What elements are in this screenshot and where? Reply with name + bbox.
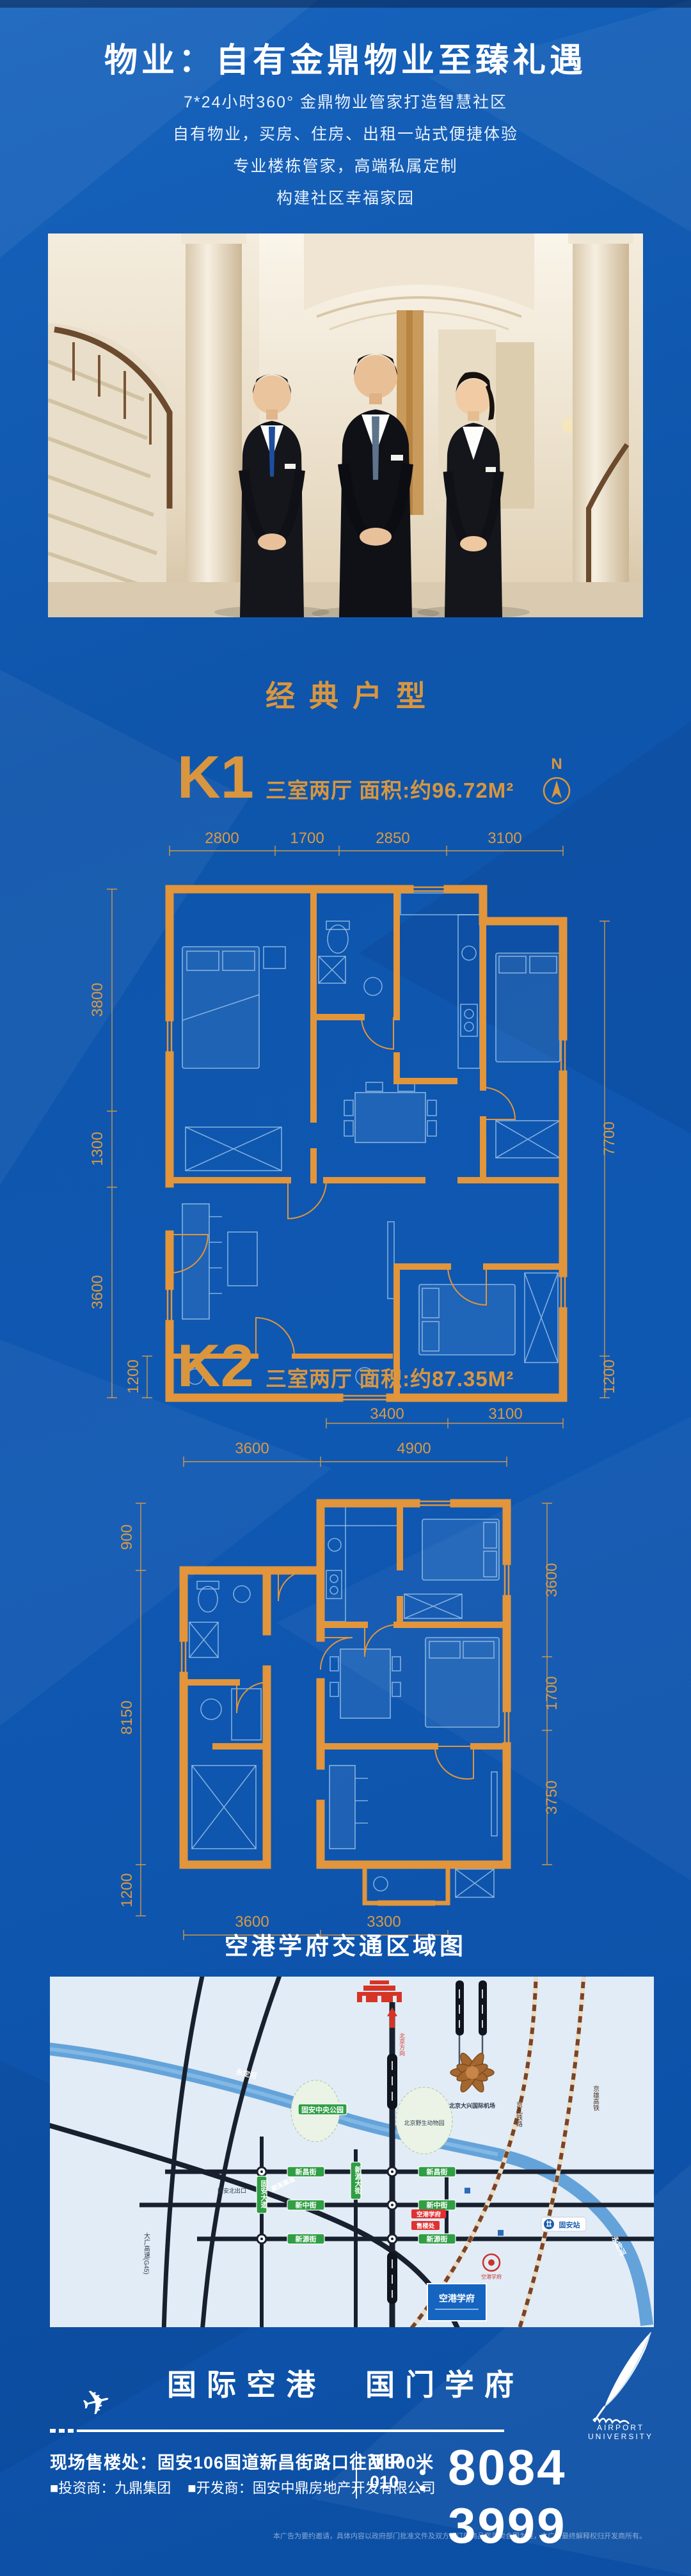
sign-guan-ave: 固安大道 bbox=[260, 2180, 268, 2209]
section-title-classic: 经典户型 bbox=[0, 673, 691, 715]
metro-icon bbox=[465, 2188, 470, 2193]
metro-icon bbox=[498, 2230, 504, 2236]
sign-xinchang: 新昌街 bbox=[296, 2167, 317, 2176]
k2-dim: 3750 bbox=[543, 1780, 560, 1814]
wildlife-park-label: 北京野生动物园 bbox=[404, 2119, 444, 2126]
to-beijing-label: 北京方向 bbox=[399, 2033, 405, 2056]
k1-dim: 1700 bbox=[290, 830, 324, 847]
disclaimer: 本广告为要约邀请，具体内容以政府部门批准文件及双方签订的商品房买卖合同为准，本广… bbox=[0, 2531, 646, 2541]
vip-block: VIP 010 bbox=[370, 2450, 404, 2492]
k1-title: K1 三室两厅 面积:约96.72M² bbox=[0, 747, 691, 807]
k2-dim: 1700 bbox=[543, 1676, 560, 1710]
project-billboard: 空港学府 bbox=[427, 2284, 486, 2321]
k1-dim: 1300 bbox=[89, 1132, 106, 1166]
k2-dim: 3600 bbox=[235, 1440, 269, 1457]
k2-dim: 8150 bbox=[118, 1700, 136, 1734]
rule-dashes bbox=[50, 2429, 74, 2433]
k1-dim: 7700 bbox=[601, 1121, 614, 1155]
k2-title: K2 三室两厅 面积:约87.35M² bbox=[0, 1336, 691, 1396]
phone-colon: ： bbox=[415, 2454, 447, 2500]
header-line: 7*24小时360° 金鼎物业管家打造智慧社区 bbox=[0, 90, 691, 113]
k1-dim: 2800 bbox=[205, 830, 239, 847]
guan-station: 固安站 bbox=[541, 2217, 586, 2231]
k2-dim: 1200 bbox=[118, 1873, 136, 1907]
central-park-sign: 固安中央公园 bbox=[301, 2105, 344, 2114]
header-line: 专业楼栋管家，高端私属定制 bbox=[0, 154, 691, 177]
sign-xinzhong: 新中街 bbox=[427, 2201, 448, 2209]
k2-dim: 900 bbox=[118, 1524, 136, 1550]
k2-floorplan: 3600 4900 900 8150 1200 3600 1700 3750 3… bbox=[77, 1407, 614, 1957]
compass-icon: N bbox=[537, 754, 576, 812]
investor: ■投资商：九鼎集团 bbox=[50, 2477, 171, 2497]
feather-icon bbox=[579, 2330, 662, 2432]
staff-photo-scene bbox=[48, 233, 643, 617]
g45-label: 大广高速(G45) bbox=[143, 2232, 150, 2275]
emblem-label: 空港学府 bbox=[481, 2273, 502, 2280]
k2-dim: 3600 bbox=[543, 1563, 560, 1597]
k2-code: K2 bbox=[177, 1336, 254, 1396]
k1-dim: 2850 bbox=[376, 830, 409, 847]
header-line: 构建社区幸福家园 bbox=[0, 186, 691, 209]
traffic-map: 北京野生动物园 北京大兴国际机场 bbox=[50, 1977, 654, 2327]
k1-desc: 三室两厅 面积:约96.72M² bbox=[266, 773, 514, 804]
airport-label: 北京大兴国际机场 bbox=[449, 2102, 495, 2109]
sign-xinchang: 新昌街 bbox=[427, 2167, 448, 2176]
jingxiong-label: 京雄高铁 bbox=[592, 2085, 600, 2112]
k1-dim: 3800 bbox=[89, 983, 106, 1016]
sign-xinyuan-ave: 新源大街 bbox=[354, 2165, 363, 2195]
compass-n: N bbox=[551, 755, 562, 773]
tag-sales: 售楼处 bbox=[417, 2222, 435, 2230]
k2-desc: 三室两厅 面积:约87.35M² bbox=[266, 1362, 514, 1393]
k1-code: K1 bbox=[177, 747, 254, 807]
tag-project: 空港学府 bbox=[417, 2211, 441, 2218]
billboard-label: 空港学府 bbox=[439, 2293, 475, 2303]
page-title: 物业：自有金鼎物业至臻礼遇 bbox=[0, 33, 691, 81]
divider-rule bbox=[77, 2430, 504, 2432]
sign-xinyuan: 新源街 bbox=[296, 2234, 317, 2243]
station-label: 固安站 bbox=[559, 2220, 580, 2229]
sign-xinyuan: 新源街 bbox=[427, 2234, 448, 2243]
jingjiu-label: 京九铁路 bbox=[515, 2101, 523, 2128]
exit-label: 固安北出口 bbox=[218, 2187, 246, 2194]
city-code: 010 bbox=[370, 2473, 404, 2492]
map-title: 空港学府交通区域图 bbox=[0, 1927, 691, 1961]
k1-dim: 3600 bbox=[89, 1275, 106, 1309]
header-line: 自有物业，买房、住房、出租一站式便捷体验 bbox=[0, 122, 691, 145]
staff-photo bbox=[48, 233, 643, 617]
top-strip bbox=[0, 0, 691, 8]
k2-dim: 4900 bbox=[397, 1440, 431, 1457]
sign-xinzhong: 新中街 bbox=[296, 2201, 317, 2209]
poster: 物业：自有金鼎物业至臻礼遇 7*24小时360° 金鼎物业管家打造智慧社区 自有… bbox=[0, 0, 691, 2576]
k1-dim: 3100 bbox=[488, 830, 521, 847]
footer-divider bbox=[356, 2451, 357, 2499]
vip-label: VIP bbox=[370, 2450, 404, 2473]
